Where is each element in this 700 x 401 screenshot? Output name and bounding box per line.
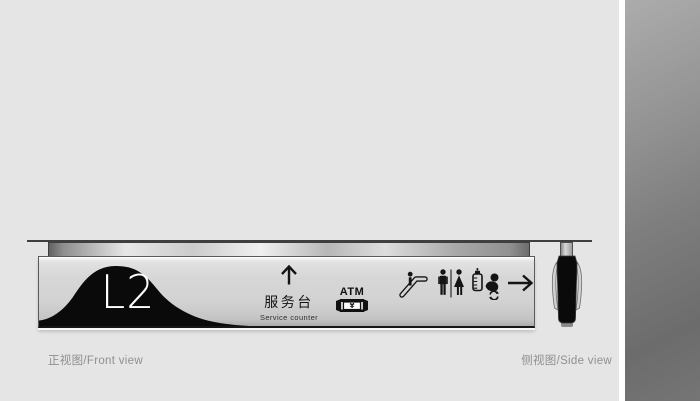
side-foot (561, 323, 573, 327)
escalator-icon (397, 267, 431, 299)
service-counter-en: Service counter (251, 313, 327, 322)
restroom-icon (436, 268, 466, 299)
arrow-up-icon (278, 263, 300, 286)
material-swatch (625, 0, 700, 401)
side-view-caption: 侧视图/Side view (521, 352, 612, 368)
atm-currency: ¥ (350, 302, 355, 310)
front-view-caption: 正视图/Front view (48, 352, 143, 368)
atm-machine-icon: ¥ (335, 298, 369, 313)
level-badge: L2 (91, 268, 166, 316)
service-counter-group: 服务台 Service counter (251, 263, 327, 322)
sign-panel-side-view (544, 254, 588, 330)
atm-label: ATM (331, 287, 373, 298)
service-counter-zh: 服务台 (251, 292, 327, 312)
sign-panel-front-view: L2 服务台 Service counter ATM ¥ (38, 256, 535, 328)
atm-group: ATM ¥ (331, 287, 373, 318)
baby-care-icon (471, 267, 501, 300)
side-slab (557, 256, 577, 323)
pictogram-row (397, 265, 534, 301)
mounting-bar (48, 242, 530, 257)
arrow-right-icon (506, 271, 534, 295)
